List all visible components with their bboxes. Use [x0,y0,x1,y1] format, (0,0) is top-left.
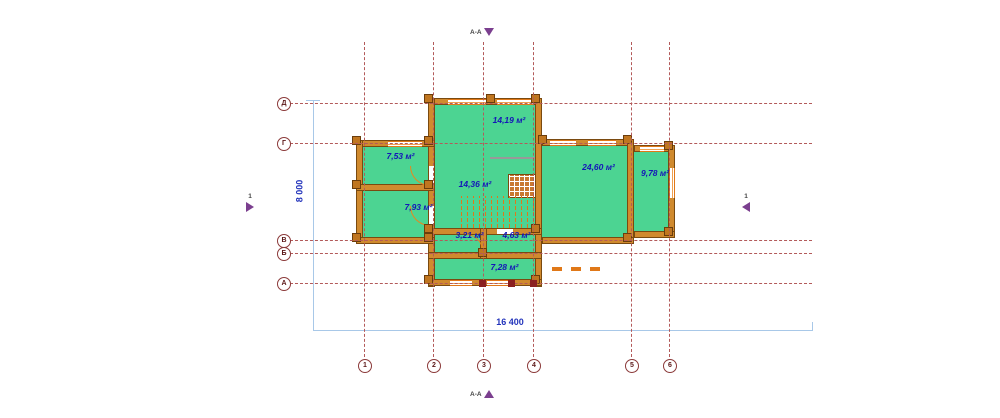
grid-axis-2 [433,42,434,357]
column-marker [530,280,537,287]
area-label-center: 14,36 м² [445,179,505,189]
section-arrow-left-icon [742,202,750,212]
grid-bubble-col-6: 6 [663,359,677,373]
grid-bubble-row-a: А [277,277,291,291]
area-label-top: 14,19 м² [479,115,539,125]
overall-height-dimension: 8 000 [294,180,304,203]
dimension-line-vertical [313,100,314,330]
log-end [352,180,361,189]
grid-bubble-col-3: 3 [477,359,491,373]
dimension-tick-top [306,100,320,101]
grid-bubble-row-v: В [277,234,291,248]
window-top-1 [448,99,486,105]
wall-left-exterior [356,140,363,244]
column-marker [479,280,486,287]
log-end [424,94,433,103]
area-label-right-small: 9,78 м² [630,168,680,178]
window-top-2 [497,99,533,105]
grid-bubble-row-g: Г [277,137,291,151]
section-marker-bottom-label: А-А [470,391,482,398]
section-marker-top: А-А [470,28,494,36]
overall-width-dimension: 16 400 [480,317,540,327]
log-end [424,180,433,189]
grid-axis-4 [533,42,534,357]
stair-railing [490,157,536,159]
section-arrow-down-icon [484,28,494,36]
stair-treads [461,196,536,228]
porch-edge [552,267,600,271]
grid-bubble-col-5: 5 [625,359,639,373]
section-arrow-up-icon [484,390,494,398]
area-label-right-large: 24,60 м² [571,162,626,172]
grid-axis-b [290,253,812,254]
section-marker-left: 1 [246,193,254,212]
area-label-small-2: 4,63 м² [494,230,539,240]
dimension-line-horizontal [313,330,812,331]
grid-axis-v [290,240,812,241]
grid-axis-5 [631,42,632,357]
grid-axis-1 [364,42,365,357]
room-right-large [540,144,629,239]
grid-bubble-row-b: Б [277,247,291,261]
grid-axis-d [290,103,812,104]
section-marker-right-label: 1 [744,193,748,200]
stair-landing [508,174,536,198]
area-label-upper-left: 7,53 м² [373,151,428,161]
grid-bubble-col-2: 2 [427,359,441,373]
window-leftwing [388,141,422,147]
section-marker-top-label: А-А [470,29,482,36]
section-arrow-right-icon [246,202,254,212]
area-label-lower-left: 7,93 м² [391,202,446,212]
grid-bubble-row-d: Д [277,97,291,111]
section-marker-right: 1 [742,193,750,212]
section-marker-bottom: А-А [470,390,494,398]
grid-axis-6 [669,42,670,357]
room-right-small [632,150,670,233]
grid-axis-g [290,143,812,144]
area-label-small-1: 3,21 м² [447,230,492,240]
column-marker [508,280,515,287]
dimension-tick-right [812,322,813,331]
grid-axis-a [290,283,812,284]
grid-bubble-col-4: 4 [527,359,541,373]
area-label-bottom: 7,28 м² [477,262,532,272]
log-end [424,224,433,233]
section-marker-left-label: 1 [248,193,252,200]
window-farright-top [640,146,664,152]
log-end [486,94,495,103]
grid-bubble-col-1: 1 [358,359,372,373]
grid-axis-3 [483,42,484,357]
floor-plan-canvas: 8 000 16 400 [0,0,1000,418]
